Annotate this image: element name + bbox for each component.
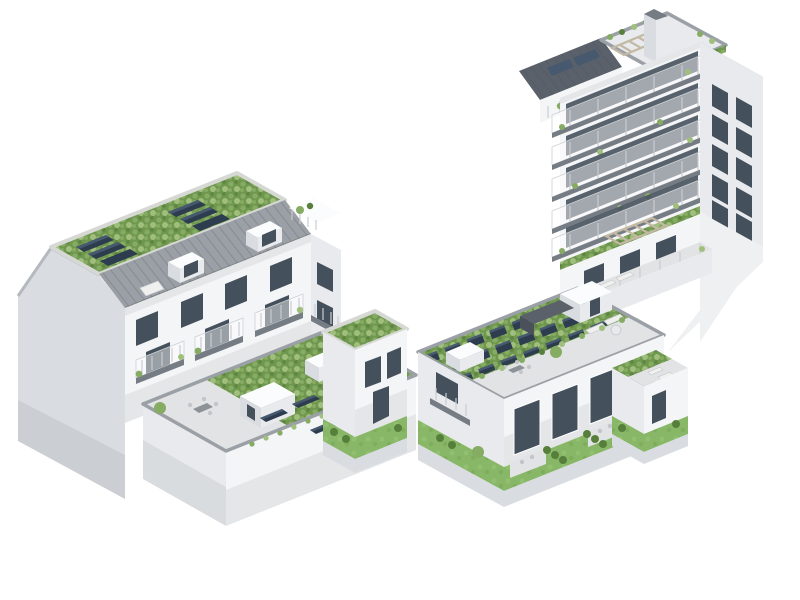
right-block — [418, 9, 763, 507]
chimney — [644, 9, 668, 62]
end-wing — [323, 311, 407, 473]
tower-facade-southeast — [700, 42, 763, 247]
terrace-tree — [154, 402, 166, 414]
french-door — [514, 399, 540, 455]
french-door — [552, 384, 578, 440]
building-complex-rendering — [0, 0, 800, 600]
rendering-canvas — [0, 0, 800, 600]
left-block — [18, 173, 416, 526]
garden-tree — [472, 446, 484, 458]
terrace-tree — [550, 346, 562, 358]
lower-terrace-block — [612, 350, 688, 464]
